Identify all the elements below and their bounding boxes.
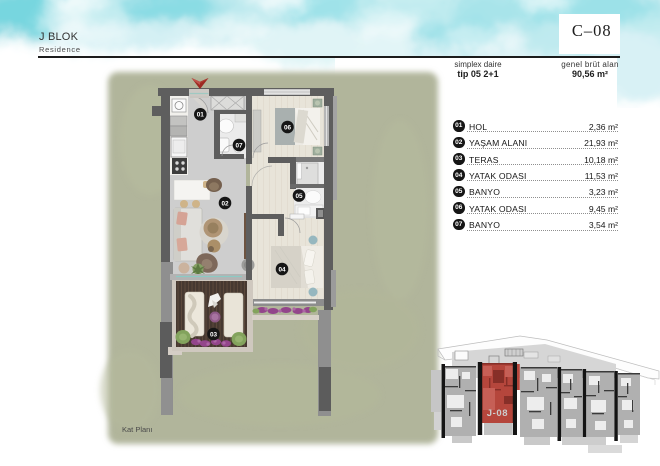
svg-text:J-08: J-08 <box>487 408 508 419</box>
svg-text:03: 03 <box>210 331 218 338</box>
svg-text:01: 01 <box>197 112 205 119</box>
svg-text:07: 07 <box>235 142 243 149</box>
svg-text:04: 04 <box>278 266 286 273</box>
svg-text:Kat Planı: Kat Planı <box>122 425 152 434</box>
svg-text:05: 05 <box>295 193 303 200</box>
svg-text:06: 06 <box>284 124 292 131</box>
svg-text:02: 02 <box>221 200 229 207</box>
